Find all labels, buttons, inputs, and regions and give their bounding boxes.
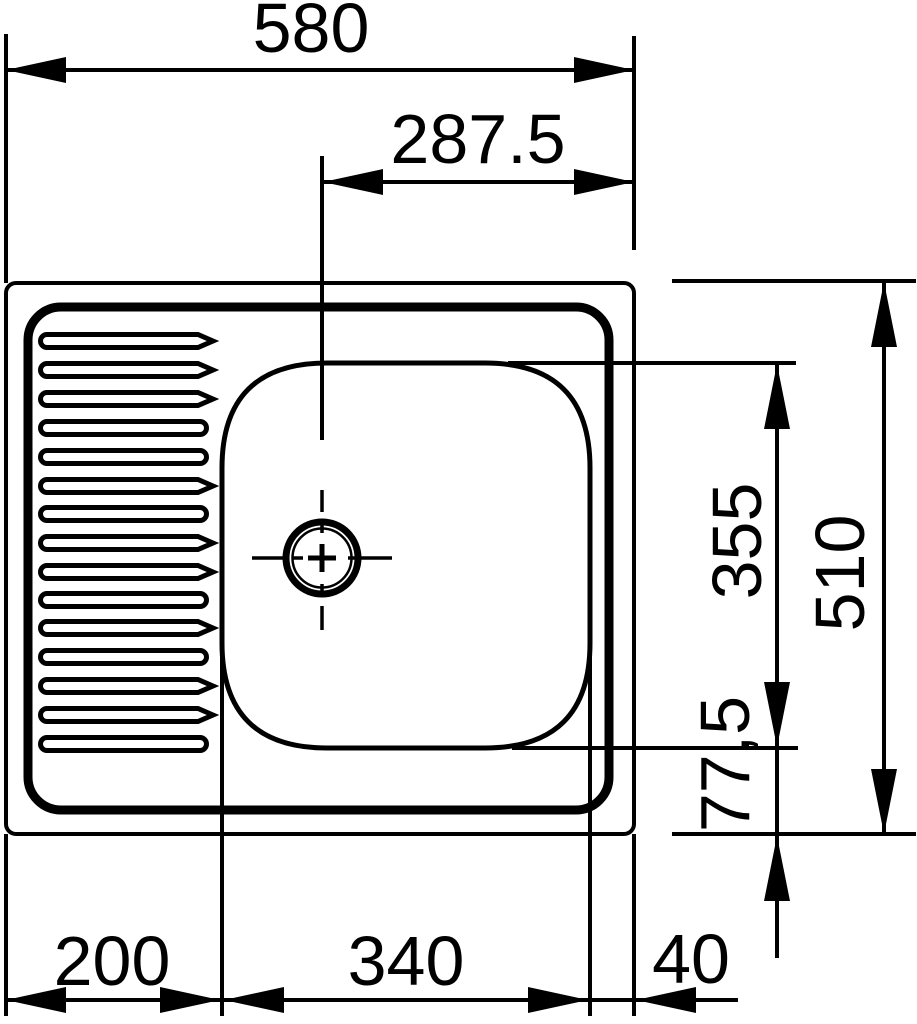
rib (41, 651, 207, 664)
rib (41, 680, 214, 693)
dim-label-overall-depth: 510 (801, 515, 879, 632)
arrowhead (528, 987, 588, 1013)
arrowhead (574, 169, 634, 195)
dim-label-bowl-length: 355 (698, 483, 776, 600)
sink-dimension-drawing: 580 287.5 355 77,5 510 200 340 40 (0, 0, 917, 1024)
arrowhead (871, 282, 897, 347)
arrowhead (764, 836, 790, 901)
arrowhead (6, 57, 66, 83)
dim-bottom-chain: 200 340 40 (6, 920, 738, 1013)
dim-label-drainboard-width: 200 (54, 922, 171, 1000)
rib (41, 480, 214, 493)
rib (41, 622, 214, 635)
arrowhead (323, 169, 383, 195)
bowl-outline (222, 363, 590, 748)
rib (41, 393, 214, 406)
drainboard-ribs (41, 335, 214, 751)
arrowhead (764, 682, 790, 747)
dim-label-drain-center: 287.5 (390, 100, 565, 178)
rib (41, 364, 214, 377)
sink-plan-view (6, 156, 634, 834)
dim-label-bowl-to-edge: 77,5 (686, 696, 764, 832)
arrowhead (764, 364, 790, 429)
dim-label-overall-width: 580 (253, 0, 370, 67)
rib (41, 566, 214, 579)
dim-drain-center-to-right: 287.5 (323, 100, 634, 195)
dim-label-right-margin: 40 (652, 920, 730, 998)
dim-overall-width: 580 (6, 0, 634, 83)
rib (41, 508, 207, 521)
dim-overall-depth: 510 (801, 282, 897, 834)
dim-label-bowl-width: 340 (348, 922, 465, 1000)
arrowhead (574, 57, 634, 83)
rib (41, 738, 207, 751)
rib (41, 335, 214, 348)
rib (41, 451, 207, 464)
rib (41, 709, 214, 722)
arrowhead (871, 769, 897, 834)
technical-drawing-page: 580 287.5 355 77,5 510 200 340 40 (0, 0, 917, 1024)
drain-hole (252, 490, 392, 630)
rib (41, 537, 214, 550)
rib (41, 422, 207, 435)
arrowhead (224, 987, 284, 1013)
rib (41, 594, 207, 607)
